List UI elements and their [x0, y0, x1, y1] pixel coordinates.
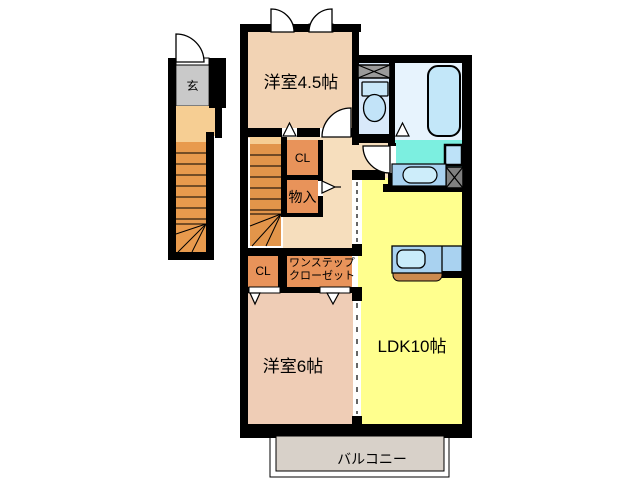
- interior-stairs: [250, 136, 281, 246]
- closet-lower-label: CL: [255, 264, 271, 278]
- wall-closet-divider: [287, 175, 318, 180]
- stair-landing: [176, 132, 206, 142]
- wall-right-main: [462, 55, 472, 438]
- wall-closet-col-right: [318, 140, 323, 217]
- wall-partition-stub2: [352, 293, 362, 301]
- floor-plan-image: 玄 洋室4.5帖 CL 物入 CL ワンステップ クローゼット 洋室6帖 LDK…: [0, 0, 640, 480]
- wall-stairs-right: [281, 132, 287, 217]
- sliding-door-channel-upper: [352, 180, 362, 244]
- closet-upper-label: CL: [295, 151, 311, 165]
- entrance-label: 玄: [186, 78, 198, 93]
- wall-entry-right-lower: [206, 132, 214, 258]
- storage-label: 物入: [289, 189, 317, 205]
- washing-machine-pan: [445, 145, 462, 165]
- washbasin-bowl: [403, 167, 437, 183]
- wall-entry-left: [168, 58, 176, 260]
- pipe-space-corner: [446, 167, 463, 188]
- threshold-closet-lower: [249, 287, 280, 293]
- wall-top-room45: [240, 24, 361, 32]
- top-door-swing-2: [309, 9, 332, 32]
- toilet-bowl: [364, 95, 386, 122]
- balcony-label: バルコニー: [337, 451, 407, 467]
- threshold-one-step-closet: [320, 287, 350, 293]
- toilet-icon: [362, 82, 388, 122]
- wall-under-storage: [281, 213, 323, 217]
- wall-bath-top: [352, 55, 472, 63]
- stair-steps: [176, 142, 206, 224]
- kitchen-unit: [392, 246, 462, 281]
- exterior-stairs: [176, 132, 206, 252]
- wall-entry-bottom: [168, 252, 214, 260]
- kitchen-wall-stub: [442, 271, 462, 278]
- entrance-hall-floor: [176, 106, 215, 136]
- stair-landing: [250, 136, 281, 144]
- washbasin-icon: [392, 164, 446, 186]
- wall-room45-right: [352, 24, 359, 145]
- kitchen-sink: [397, 250, 425, 268]
- wall-entry-right-upper: [209, 62, 226, 108]
- room-4-5-label: 洋室4.5帖: [264, 73, 339, 92]
- entrance-door-swing: [176, 34, 204, 62]
- top-door-swing-1: [271, 9, 294, 32]
- bathtub-icon: [428, 66, 460, 136]
- wall-closet-row-top: [240, 248, 362, 256]
- one-step-closet-label-1: ワンステップ: [289, 256, 355, 269]
- floor-plan-svg: 玄 洋室4.5帖 CL 物入 CL ワンステップ クローゼット 洋室6帖 LDK…: [0, 0, 640, 480]
- wall-left-main: [240, 24, 248, 438]
- ldk-floor: [358, 178, 464, 428]
- ldk-label: LDK10帖: [378, 337, 447, 356]
- room-6-label: 洋室6帖: [263, 357, 323, 376]
- wall-toilet-bottom: [354, 134, 395, 143]
- wall-closet-row-divider: [278, 254, 287, 287]
- wall-entry-right-mid: [215, 106, 222, 138]
- pipe-space-top: [358, 65, 390, 78]
- one-step-closet-label-2: クローゼット: [289, 269, 355, 282]
